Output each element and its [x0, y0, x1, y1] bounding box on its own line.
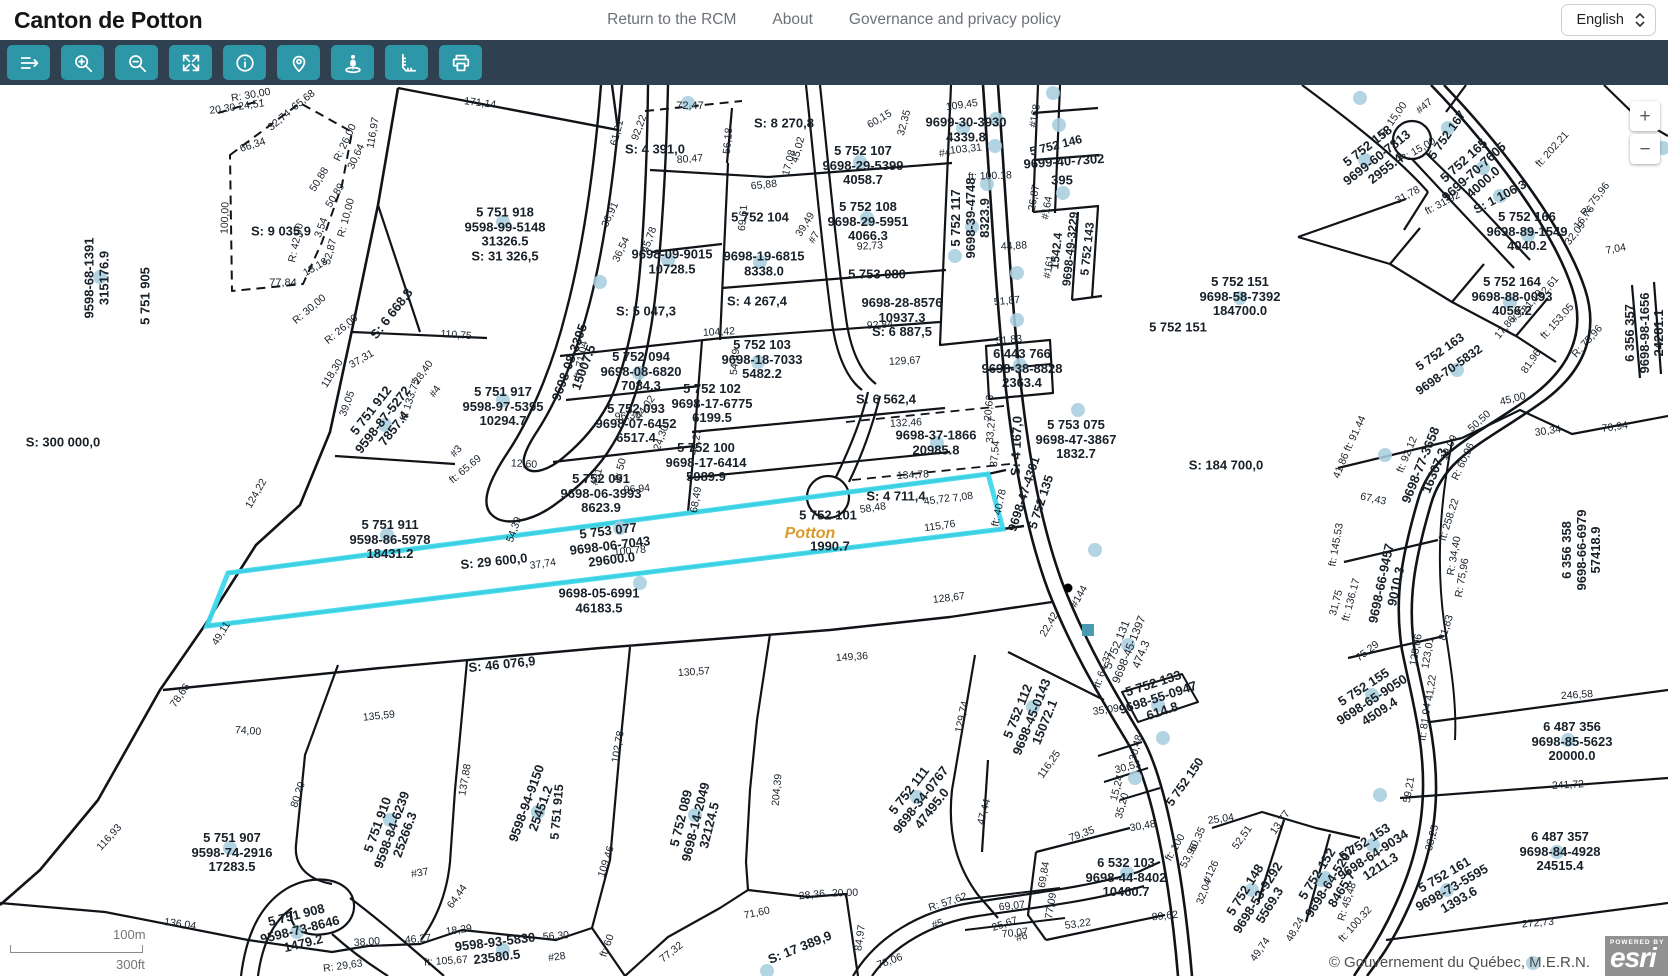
map-label: 79,35 — [1068, 825, 1097, 845]
map-label: 137,88 — [457, 763, 474, 797]
map-label: #4 — [938, 147, 951, 160]
map-label: 5 751 917 9598-97-5395 10294.7 — [463, 385, 544, 429]
map-label: 5 752 151 — [1149, 321, 1207, 336]
nav-link-governance-and-privacy-policy[interactable]: Governance and privacy policy — [849, 11, 1061, 29]
map-label: 56,18 — [722, 127, 736, 154]
map-label: 5 752 152 9698-64-5202 8465.7 — [1290, 836, 1370, 928]
map-label: 37,74 — [529, 557, 557, 572]
map-label: 6 356 358 9698-66-6979 57418.9 — [1560, 510, 1604, 591]
identify-button[interactable] — [223, 45, 266, 80]
map-label: 5 752 091 9698-06-3993 8623.9 — [561, 472, 642, 516]
language-select[interactable]: English — [1561, 4, 1656, 36]
scale-bar: 100m 300ft — [10, 926, 170, 976]
map-label: 92,73 — [857, 240, 884, 253]
zoom-in-button[interactable] — [61, 45, 104, 80]
map-label: 50,88 — [308, 166, 332, 195]
zoom-out-button[interactable]: − — [1630, 134, 1660, 164]
map-label: 9698-77-3658 16307.3 — [1399, 425, 1457, 511]
map-label: 50,50 — [1466, 409, 1493, 435]
map-label: 59,21 — [1402, 776, 1418, 804]
map-label: S: 5 047,3 — [616, 305, 676, 320]
map-label: 241,72 — [1552, 779, 1585, 793]
map-label: 5 753 080 — [848, 268, 906, 283]
map-label: ft: 92.12 — [1395, 435, 1420, 475]
map-label: R: 57,62 — [927, 891, 968, 915]
map-label: 30,34 — [1534, 424, 1562, 439]
map-label: 35,20 — [1114, 792, 1132, 820]
map-label: 135,59 — [362, 709, 395, 724]
map-label: ft: 100.32 — [1337, 905, 1375, 945]
map-label: 130,57 — [678, 666, 711, 680]
map-label: R: 75,96 — [1454, 557, 1473, 598]
map-label: R: 15,00 — [1398, 136, 1438, 166]
map-label: 116,93 — [95, 822, 125, 853]
map-label: 50,89 — [324, 182, 348, 211]
map-label: 96,30 — [614, 410, 641, 424]
app-title: Canton de Potton — [14, 7, 202, 34]
print-icon — [450, 52, 472, 74]
map-label: #5 — [931, 918, 946, 933]
map-label: 54,49 — [729, 348, 743, 375]
map-label: 5 752 100 9698-17-6414 5989.9 — [666, 441, 747, 485]
map-label: 30,48 — [1128, 734, 1146, 762]
map-label: ft: 40.78 — [990, 488, 1009, 528]
map-label: 38,00 — [353, 936, 380, 950]
map-label: R: 42,90 — [287, 222, 307, 263]
map-canvas[interactable]: 9598-68-1391 315176.95 751 905S: 300 000… — [0, 0, 1668, 976]
map-label: 13,77 — [1269, 809, 1294, 837]
map-label: ft: 64.37 — [1092, 650, 1116, 690]
map-label: 51,83 — [995, 334, 1022, 348]
map-label: ft: 105,67 — [424, 955, 469, 970]
map-label: 77,09 — [1044, 892, 1060, 920]
map-label: #28 — [547, 951, 566, 965]
map-label: 5 751 907 9598-74-2916 17283.5 — [192, 831, 273, 875]
map-label: 5 751 915 — [548, 784, 567, 841]
identify-icon — [234, 52, 256, 74]
map-label: #126 — [1202, 859, 1223, 885]
map-label: 129,74 — [954, 700, 972, 734]
map-label: 41,86 — [1332, 452, 1353, 481]
map-label: 1542.4 — [1048, 232, 1065, 270]
map-label: 32,35 — [896, 109, 914, 137]
map-label: 9699-30-3930 4339.8 — [926, 115, 1007, 144]
map-label: 96,94 — [623, 483, 650, 497]
map-label: ft: 81.94 — [1417, 702, 1434, 741]
map-label: 45,00 — [1499, 391, 1527, 409]
map-label: S: 9 035,9 — [251, 225, 311, 240]
map-label: 9698-19-6815 8338.0 — [724, 249, 805, 278]
map-label: S: 17 389,9 — [766, 929, 834, 968]
map-label: 16,76 — [1572, 204, 1598, 232]
map-label: 6 356 357 9698-98-1656 24281.1 — [1623, 293, 1667, 374]
map-label: S: 1 106,3 — [1471, 177, 1529, 217]
map-label: 109,45 — [945, 98, 978, 114]
map-label: 134,78 — [897, 469, 930, 483]
map-label: S: 29 600,0 — [460, 551, 528, 573]
map-label: 128,67 — [932, 591, 965, 607]
map-label: 81,83 — [1437, 614, 1456, 643]
map-label: #164 — [1040, 195, 1056, 220]
map-label: 5 752 133 9698-55-0947 614.8 — [1113, 665, 1204, 732]
map-label: 9598-94-9150 25451.2 — [506, 763, 561, 849]
map-label: 31,78 — [1394, 185, 1423, 208]
map-label: 124,22 — [244, 477, 270, 511]
map-label: 123,01 — [1420, 636, 1437, 670]
map-label: 30,53 — [1114, 759, 1142, 777]
map-label: 60,35 — [1187, 826, 1209, 855]
map-label: S: 184 700,0 — [1189, 459, 1263, 474]
map-label: 84,97 — [853, 924, 868, 952]
measure-button[interactable] — [385, 45, 428, 80]
map-label: 17,08 — [781, 149, 799, 177]
map-label: 9698-37-1866 20985.8 — [896, 428, 977, 457]
map-label: Potton — [785, 525, 836, 543]
map-label: 48,24 — [1284, 916, 1307, 945]
map-label: 69,84 — [1037, 861, 1053, 889]
map-label: 110,75 — [440, 329, 472, 343]
esri-wordmark: esri — [1610, 946, 1668, 970]
updown-icon — [1635, 13, 1645, 27]
map-label: S: 300 000,0 — [26, 436, 100, 451]
map-label: 118,30 — [320, 358, 347, 391]
map-label: 72,47 — [676, 100, 704, 112]
map-label: 5 752 103 9698-18-7033 5482.2 — [722, 338, 803, 382]
map-label: 28,40 — [412, 359, 437, 387]
map-label: 45,02 — [790, 136, 808, 164]
map-label: 37,31 — [348, 348, 377, 371]
map-label: 5 752 150 — [1163, 755, 1206, 809]
map-label: 19,09 — [1439, 434, 1461, 463]
map-label: 5 752 143 — [1078, 222, 1097, 277]
map-label: R: 75,96 — [1579, 181, 1613, 220]
map-label: R: 26,00 — [323, 313, 361, 348]
map-label: 5 752 151 9698-58-7392 184700.0 — [1200, 275, 1281, 319]
map-label: ft: 50 — [612, 457, 630, 483]
map-label: S: 4 391,0 — [625, 143, 685, 158]
map-attribution: © Gouvernement du Québec, M.E.R.N. — [1329, 954, 1590, 971]
zoom-out-icon — [126, 52, 148, 74]
map-label: ft: 65.69 — [448, 453, 485, 486]
map-label: #3 — [449, 444, 466, 461]
map-label: 32,74 — [266, 108, 294, 134]
map-label: 67,43 — [1359, 491, 1387, 508]
map-label: 71,60 — [743, 905, 771, 922]
map-label: S: 4 711,4 — [866, 490, 925, 505]
map-label: 38,25 — [1424, 824, 1442, 852]
map-label: 5 752 165 9699-70-7605 4000.0 — [1429, 129, 1519, 216]
map-label: 30,64 — [346, 143, 368, 172]
map-label: 89,62 — [1151, 910, 1178, 925]
map-label: 45,78 — [640, 226, 660, 255]
map-label: 13,18 — [302, 256, 331, 279]
map-label: #37 — [410, 867, 429, 882]
map-label: R: 75,96 — [1570, 323, 1605, 360]
map-label: 9698-09-9015 10728.5 — [632, 247, 713, 276]
map-label: 61,21 — [609, 119, 627, 147]
map-label: 3,54 — [313, 216, 331, 239]
map-label: S: 4 167,0 — [1009, 416, 1026, 476]
map-label: 32,04 — [1195, 878, 1215, 907]
map-label: R: 26,00 — [332, 123, 360, 164]
map-label: 33,27 — [985, 416, 999, 443]
map-label: 20,30 24,51 — [209, 98, 266, 117]
map-label: ft: 100.18 — [968, 170, 1012, 183]
map-label: 5 752 161 9698-73-5595 1393.6 — [1406, 849, 1498, 928]
map-label: 246,58 — [1561, 689, 1594, 703]
map-label: 9699-40-7302 — [1023, 152, 1105, 172]
map-label: 100,00 — [220, 202, 233, 235]
map-label: 20,63 — [983, 394, 997, 421]
map-label: 64,44 — [446, 883, 471, 911]
map-label: R: 29,63 — [323, 958, 364, 975]
map-label: 77,32 — [658, 940, 686, 966]
map-label: 18,29 — [445, 923, 473, 938]
map-label: 39,05 — [338, 390, 358, 419]
map-label: 49,11 — [210, 620, 234, 648]
map-label: 9698-66-9457 9010.3 — [1366, 542, 1412, 627]
map-toolbar — [0, 40, 1668, 85]
panel-toggle-icon — [18, 52, 40, 74]
map-label: 5 752 104 — [731, 211, 789, 226]
nav-link-about[interactable]: About — [772, 11, 813, 29]
map-label: R: 45,48 — [1336, 881, 1360, 922]
zoom-in-icon — [72, 52, 94, 74]
map-label: 5 752 089 9698-14-2049 32124.5 — [665, 777, 727, 866]
map-label: 78,06 — [876, 952, 905, 972]
map-label: 22,42 — [1038, 611, 1061, 640]
map-label: 69,61 — [737, 204, 751, 231]
map-label: ft: 71.04 — [573, 340, 591, 379]
map-label: 36,54 — [611, 236, 633, 265]
map-label: 32,09 — [1563, 220, 1589, 248]
map-labels-layer: 9598-68-1391 315176.95 751 905S: 300 000… — [0, 0, 1668, 976]
map-label: R: 30,00 — [230, 87, 271, 106]
map-zoom-control: + − — [1630, 101, 1660, 164]
map-label: 5 752 135 — [1026, 473, 1057, 530]
map-label: 9598-93-5830 23580.5 — [454, 930, 538, 969]
map-label: S: 6 562,4 — [856, 393, 916, 408]
map-label: 41,22 — [1424, 674, 1439, 702]
map-label: 5 752 101 — [799, 509, 857, 524]
map-label: R: 15,00 — [1378, 100, 1410, 139]
map-label: 56,30 — [542, 930, 569, 944]
map-label: R: 10,00 — [336, 197, 358, 238]
map-label: 26,87 — [1027, 184, 1043, 212]
map-label: 51,87 — [993, 295, 1020, 309]
map-label: 66,34 — [239, 136, 268, 155]
map-label: 5 752 167 — [1425, 108, 1468, 162]
map-label: 32,61 — [1536, 274, 1562, 302]
map-label: 47,44 — [976, 798, 994, 826]
nav-link-return-to-the-rcm[interactable]: Return to the RCM — [607, 11, 736, 29]
default-extent-icon — [180, 52, 202, 74]
map-label: 75,29 — [1354, 639, 1382, 665]
map-label: ft: 136.17 — [1341, 577, 1364, 622]
map-label: R: 60,96 — [1450, 442, 1478, 483]
map-label: 6 532 103 9698-44-8402 10460.7 — [1086, 856, 1167, 900]
map-label: 12,60 — [511, 458, 538, 471]
map-label: 5 752 131 9698-45-1397 474.3 — [1099, 609, 1162, 690]
map-label: ft: 153.05 — [1539, 302, 1577, 342]
map-label: #168 — [1028, 103, 1044, 128]
map-label: 5 752 094 9698-08-6820 7084.3 — [601, 350, 682, 394]
map-label: 53,96 — [1179, 842, 1202, 871]
map-label: 104,42 — [703, 326, 736, 340]
map-label: 5 751 911 9598-86-5978 18431.2 — [350, 518, 431, 562]
map-label: ft: 100 — [1164, 832, 1189, 863]
map-label: 5 752 166 9698-89-1549 4040.2 — [1487, 210, 1568, 254]
scale-imperial-label: 300ft — [116, 957, 145, 972]
map-label: 21,10 — [1520, 288, 1546, 316]
map-label: 395 — [1051, 174, 1073, 189]
map-label: 25,04 — [1207, 812, 1235, 827]
map-label: 132,46 — [890, 417, 923, 431]
locate-pin-icon — [288, 52, 310, 74]
map-label: S: 8 270,8 — [754, 117, 814, 132]
panel-toggle-button[interactable] — [7, 45, 50, 80]
map-label: #4 — [428, 384, 444, 400]
map-label: R: 34,40 — [1446, 535, 1465, 576]
map-label: 74,00 — [234, 725, 261, 739]
map-label: 44,02 — [634, 394, 659, 422]
map-label: 5 751 918 9598-99-5148 31326.5 S: 31 326… — [465, 206, 546, 265]
map-label: 70,07 — [1001, 927, 1028, 942]
map-label: 38,91 — [600, 201, 622, 230]
map-label: 204,39 — [771, 773, 786, 806]
map-label: ft: 258.22 — [1438, 497, 1463, 542]
map-label: 65,88 — [750, 179, 777, 194]
scale-metric-label: 100m — [113, 927, 146, 942]
language-value: English — [1576, 12, 1624, 28]
map-label: 9698-08-3395 15007.5 — [549, 322, 604, 408]
map-label: 58,48 — [859, 501, 887, 516]
map-label: 116,97 — [365, 117, 382, 150]
map-label: 6 443 766 9698-38-8828 2363.4 — [982, 347, 1063, 391]
map-label: 103,31 — [949, 142, 982, 157]
map-label: 44,27 — [689, 428, 705, 456]
zoom-in-button[interactable]: + — [1630, 101, 1660, 131]
map-label: 44,88 — [1001, 240, 1028, 253]
map-label: 80,47 — [676, 153, 703, 167]
default-extent-button[interactable] — [169, 45, 212, 80]
map-label: R: 30,00 — [291, 293, 329, 328]
print-button[interactable] — [439, 45, 482, 80]
map-label: 77,84 — [269, 277, 297, 289]
map-label: 9698-49-3229 — [1060, 211, 1081, 287]
map-label: 78,66 — [169, 682, 194, 710]
map-label: 9598-68-1391 315176.9 — [82, 238, 111, 319]
map-label: 30,48 — [1129, 819, 1157, 835]
map-label: 5 751 905 — [139, 267, 154, 325]
locate-pin-button[interactable] — [277, 45, 320, 80]
map-label: 5 751 912 9598-87-5272 7857.4 — [341, 375, 426, 466]
map-label: ft: 202.21 — [1534, 130, 1572, 170]
app-header: Canton de Potton Return to the RCMAboutG… — [0, 0, 1668, 40]
map-label: ft: 60 — [598, 933, 617, 959]
map-label: 24,30 — [652, 424, 672, 453]
street-view-icon — [342, 52, 364, 74]
map-label: 9698-05-6991 46183.5 — [559, 586, 640, 615]
map-label: 35,09 — [1092, 703, 1120, 718]
map-label: #6 — [1015, 931, 1030, 946]
map-label: 25,67 — [991, 915, 1020, 934]
map-label: 7,04 — [1605, 242, 1627, 257]
map-label: 1990.7 — [810, 540, 850, 555]
street-view-button[interactable] — [331, 45, 374, 80]
map-label: 125,06 — [1408, 633, 1425, 667]
map-label: S: 4 267,4 — [727, 295, 787, 310]
map-label: 5 752 148 9698-53-9292 5569.3 — [1218, 852, 1298, 944]
map-label: 5 753 075 9698-47-3867 1832.7 — [1036, 418, 1117, 462]
main-nav: Return to the RCMAboutGovernance and pri… — [607, 11, 1061, 29]
map-label: 272,73 — [1521, 917, 1554, 932]
map-label: 116,25 — [1036, 749, 1064, 781]
map-label: 5 752 112 9698-45-0143 15072.1 — [996, 671, 1067, 763]
map-label: 9698-28-8576 10937.3 S: 6 887,5 — [862, 296, 943, 340]
map-label: 53,22 — [1064, 917, 1092, 932]
map-label: 5 752 102 9698-17-6775 6199.5 — [672, 382, 753, 426]
map-label: 100,78 — [613, 545, 646, 560]
map-label: 81,96 — [1520, 348, 1545, 376]
map-label: 5 752 093 9698-07-6452 6517.4 — [596, 402, 677, 446]
map-label: 65,68 — [290, 88, 318, 114]
zoom-out-button[interactable] — [115, 45, 158, 80]
map-label: 5 752 158 9699-60-7813 2955.4 — [1332, 116, 1423, 201]
map-label: S: 46 076,9 — [468, 654, 536, 676]
map-label: ft: 31.92 — [1423, 190, 1462, 218]
map-label: 9698-47-4301 — [1005, 455, 1042, 533]
map-label: 7,08 — [952, 491, 974, 506]
map-label: 5 752 146 — [1028, 133, 1083, 159]
map-label: 5 752 155 9698-65-9050 4509.4 — [1326, 659, 1418, 740]
map-label: #144 — [1069, 584, 1091, 610]
map-label: 92,84 — [867, 319, 894, 332]
map-label: 31,75 — [1328, 589, 1346, 617]
map-label: 68,49 — [689, 486, 705, 514]
map-label: #7 — [807, 230, 823, 246]
map-label: 5 752 117 9698-39-4748 8323.9 — [949, 178, 993, 259]
map-label: 15,24 — [1109, 774, 1127, 802]
map-label: #31 — [590, 467, 606, 487]
map-label: 5 752 111 9698-34-0767 47495.0 — [879, 755, 964, 846]
map-label: 102,78 — [610, 730, 627, 764]
map-label: 5 752 163 — [1413, 330, 1467, 373]
map-label: #161 — [1042, 254, 1058, 279]
map-label: 5 752 107 9698-29-5399 4058.7 — [823, 144, 904, 188]
map-label: 171,14 — [463, 96, 496, 112]
map-label: 5 752 108 9698-29-5951 4066.3 — [828, 200, 909, 244]
map-label: ft: 91.44 — [1343, 414, 1370, 453]
map-label: 5 753 077 9698-06-7043 29600.0 — [567, 519, 653, 573]
map-label: 69,07 — [998, 900, 1025, 915]
map-label: 109,46 — [596, 845, 617, 879]
map-label: 17,86 — [1493, 314, 1519, 342]
measure-icon — [396, 52, 418, 74]
map-label: #35 — [1509, 304, 1529, 325]
map-label: 115,76 — [924, 519, 957, 535]
map-label: #47 — [1414, 97, 1435, 117]
map-label: S: 6 668,8 — [368, 286, 417, 342]
map-label: 52,51 — [1231, 824, 1256, 852]
map-label: ft: 145.53 — [1327, 522, 1346, 567]
map-label: 6 487 356 9698-85-5623 20000.0 — [1532, 720, 1613, 764]
map-label: 70,94 — [1601, 420, 1629, 435]
map-label: 5 751 910 9598-84-6239 25266.3 — [357, 784, 426, 875]
map-label: 80,20 — [289, 781, 308, 810]
map-label: 60,15 — [866, 108, 895, 131]
map-label: 20,00 — [832, 888, 859, 901]
